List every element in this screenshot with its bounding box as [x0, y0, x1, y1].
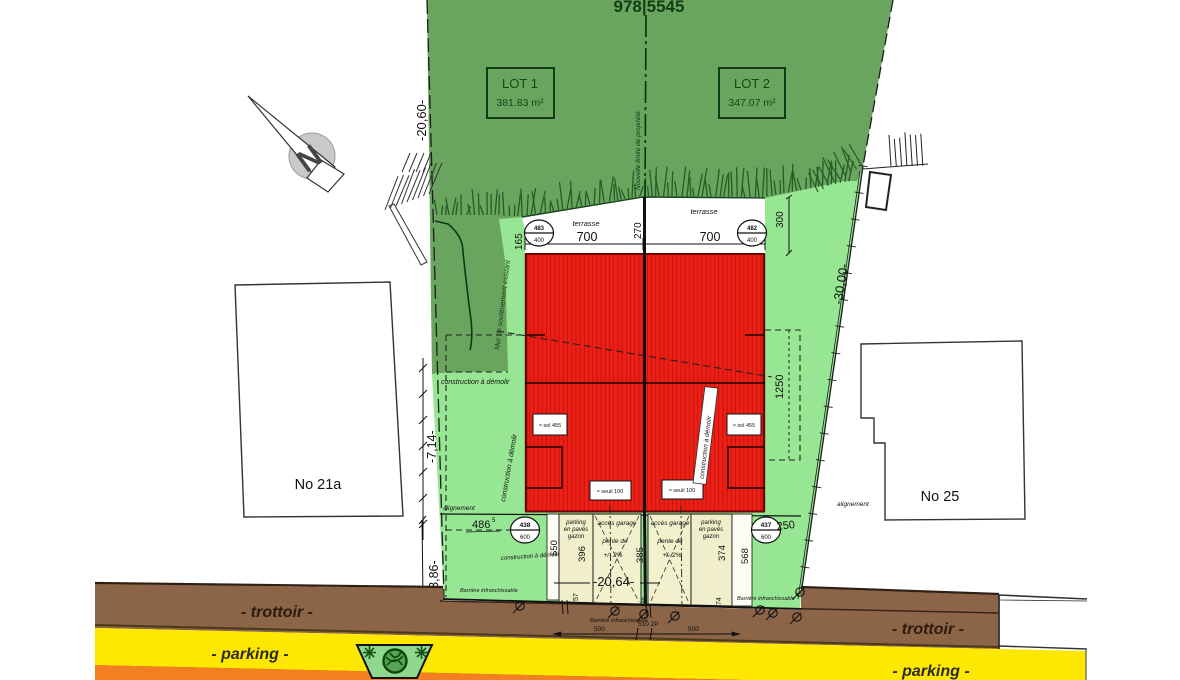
- svg-text:accès garage: accès garage: [650, 520, 689, 527]
- svg-text:374: 374: [717, 545, 728, 561]
- svg-text:500: 500: [594, 626, 605, 633]
- svg-text:300: 300: [775, 211, 786, 228]
- svg-text:483: 483: [534, 226, 545, 232]
- svg-text:437: 437: [761, 522, 772, 529]
- svg-text:486: 486: [472, 519, 490, 531]
- svg-text:≈ seuil 100: ≈ seuil 100: [669, 488, 696, 494]
- svg-text:74: 74: [716, 597, 723, 605]
- svg-text:1250: 1250: [774, 375, 786, 399]
- svg-text:≈ seuil 100: ≈ seuil 100: [597, 489, 624, 495]
- svg-text:alignement: alignement: [837, 501, 870, 508]
- svg-text:-20,64-: -20,64-: [593, 574, 634, 589]
- svg-text:en pavés: en pavés: [699, 527, 723, 533]
- svg-text:LOT 1: LOT 1: [502, 76, 538, 91]
- svg-text:No 25: No 25: [921, 489, 960, 505]
- svg-text:pente de: pente de: [601, 538, 628, 545]
- svg-text:- trottoir -: - trottoir -: [892, 621, 964, 638]
- svg-text:gazon: gazon: [568, 534, 585, 540]
- svg-text:-20,60-: -20,60-: [414, 100, 429, 141]
- svg-text:-7,14-: -7,14-: [425, 430, 439, 463]
- svg-text:600: 600: [761, 535, 772, 541]
- svg-text:Barrière infranchissable: Barrière infranchissable: [460, 588, 518, 594]
- svg-text:700: 700: [700, 230, 721, 244]
- svg-text:165: 165: [514, 233, 525, 250]
- svg-text:≈ sol 455: ≈ sol 455: [733, 423, 755, 429]
- svg-text:terrasse: terrasse: [572, 219, 599, 228]
- svg-text:500: 500: [688, 626, 699, 633]
- svg-text:- parking -: - parking -: [892, 663, 969, 680]
- svg-text:≈ sol 455: ≈ sol 455: [539, 423, 561, 429]
- svg-text:978|5545: 978|5545: [614, 0, 685, 16]
- svg-text:parking: parking: [700, 520, 721, 526]
- svg-text:Barrière infranchissable: Barrière infranchissable: [737, 596, 795, 602]
- svg-text:LOT 2: LOT 2: [734, 76, 770, 91]
- svg-text:en pavés: en pavés: [564, 527, 588, 533]
- svg-text:270: 270: [633, 222, 644, 239]
- svg-text:57: 57: [573, 593, 580, 601]
- svg-text:400: 400: [747, 238, 758, 244]
- svg-text:700: 700: [577, 230, 598, 244]
- svg-text:438: 438: [520, 522, 531, 529]
- svg-text:400: 400: [534, 238, 545, 244]
- svg-text:396: 396: [577, 546, 588, 562]
- svg-text:250: 250: [776, 519, 796, 533]
- svg-text:600: 600: [520, 535, 531, 541]
- svg-text:gazon: gazon: [703, 534, 720, 540]
- svg-text:381.83 m²: 381.83 m²: [496, 97, 544, 109]
- svg-text:347.07 m²: 347.07 m²: [728, 97, 776, 109]
- svg-text:terrasse: terrasse: [690, 207, 717, 216]
- svg-text:Barrière infranchissable: Barrière infranchissable: [590, 618, 648, 624]
- svg-text:568: 568: [740, 548, 751, 564]
- svg-text:- trottoir -: - trottoir -: [241, 604, 313, 621]
- svg-text:Nouvelle limite de propriété: Nouvelle limite de propriété: [635, 111, 642, 190]
- svg-text:alignement: alignement: [443, 505, 476, 512]
- svg-text:482: 482: [747, 226, 758, 232]
- svg-text:parking: parking: [565, 520, 586, 526]
- svg-text:accès garage: accès garage: [597, 520, 636, 527]
- svg-text:construction à démolir: construction à démolir: [441, 379, 510, 386]
- svg-text:No 21a: No 21a: [295, 477, 343, 493]
- svg-text:- parking -: - parking -: [211, 646, 288, 663]
